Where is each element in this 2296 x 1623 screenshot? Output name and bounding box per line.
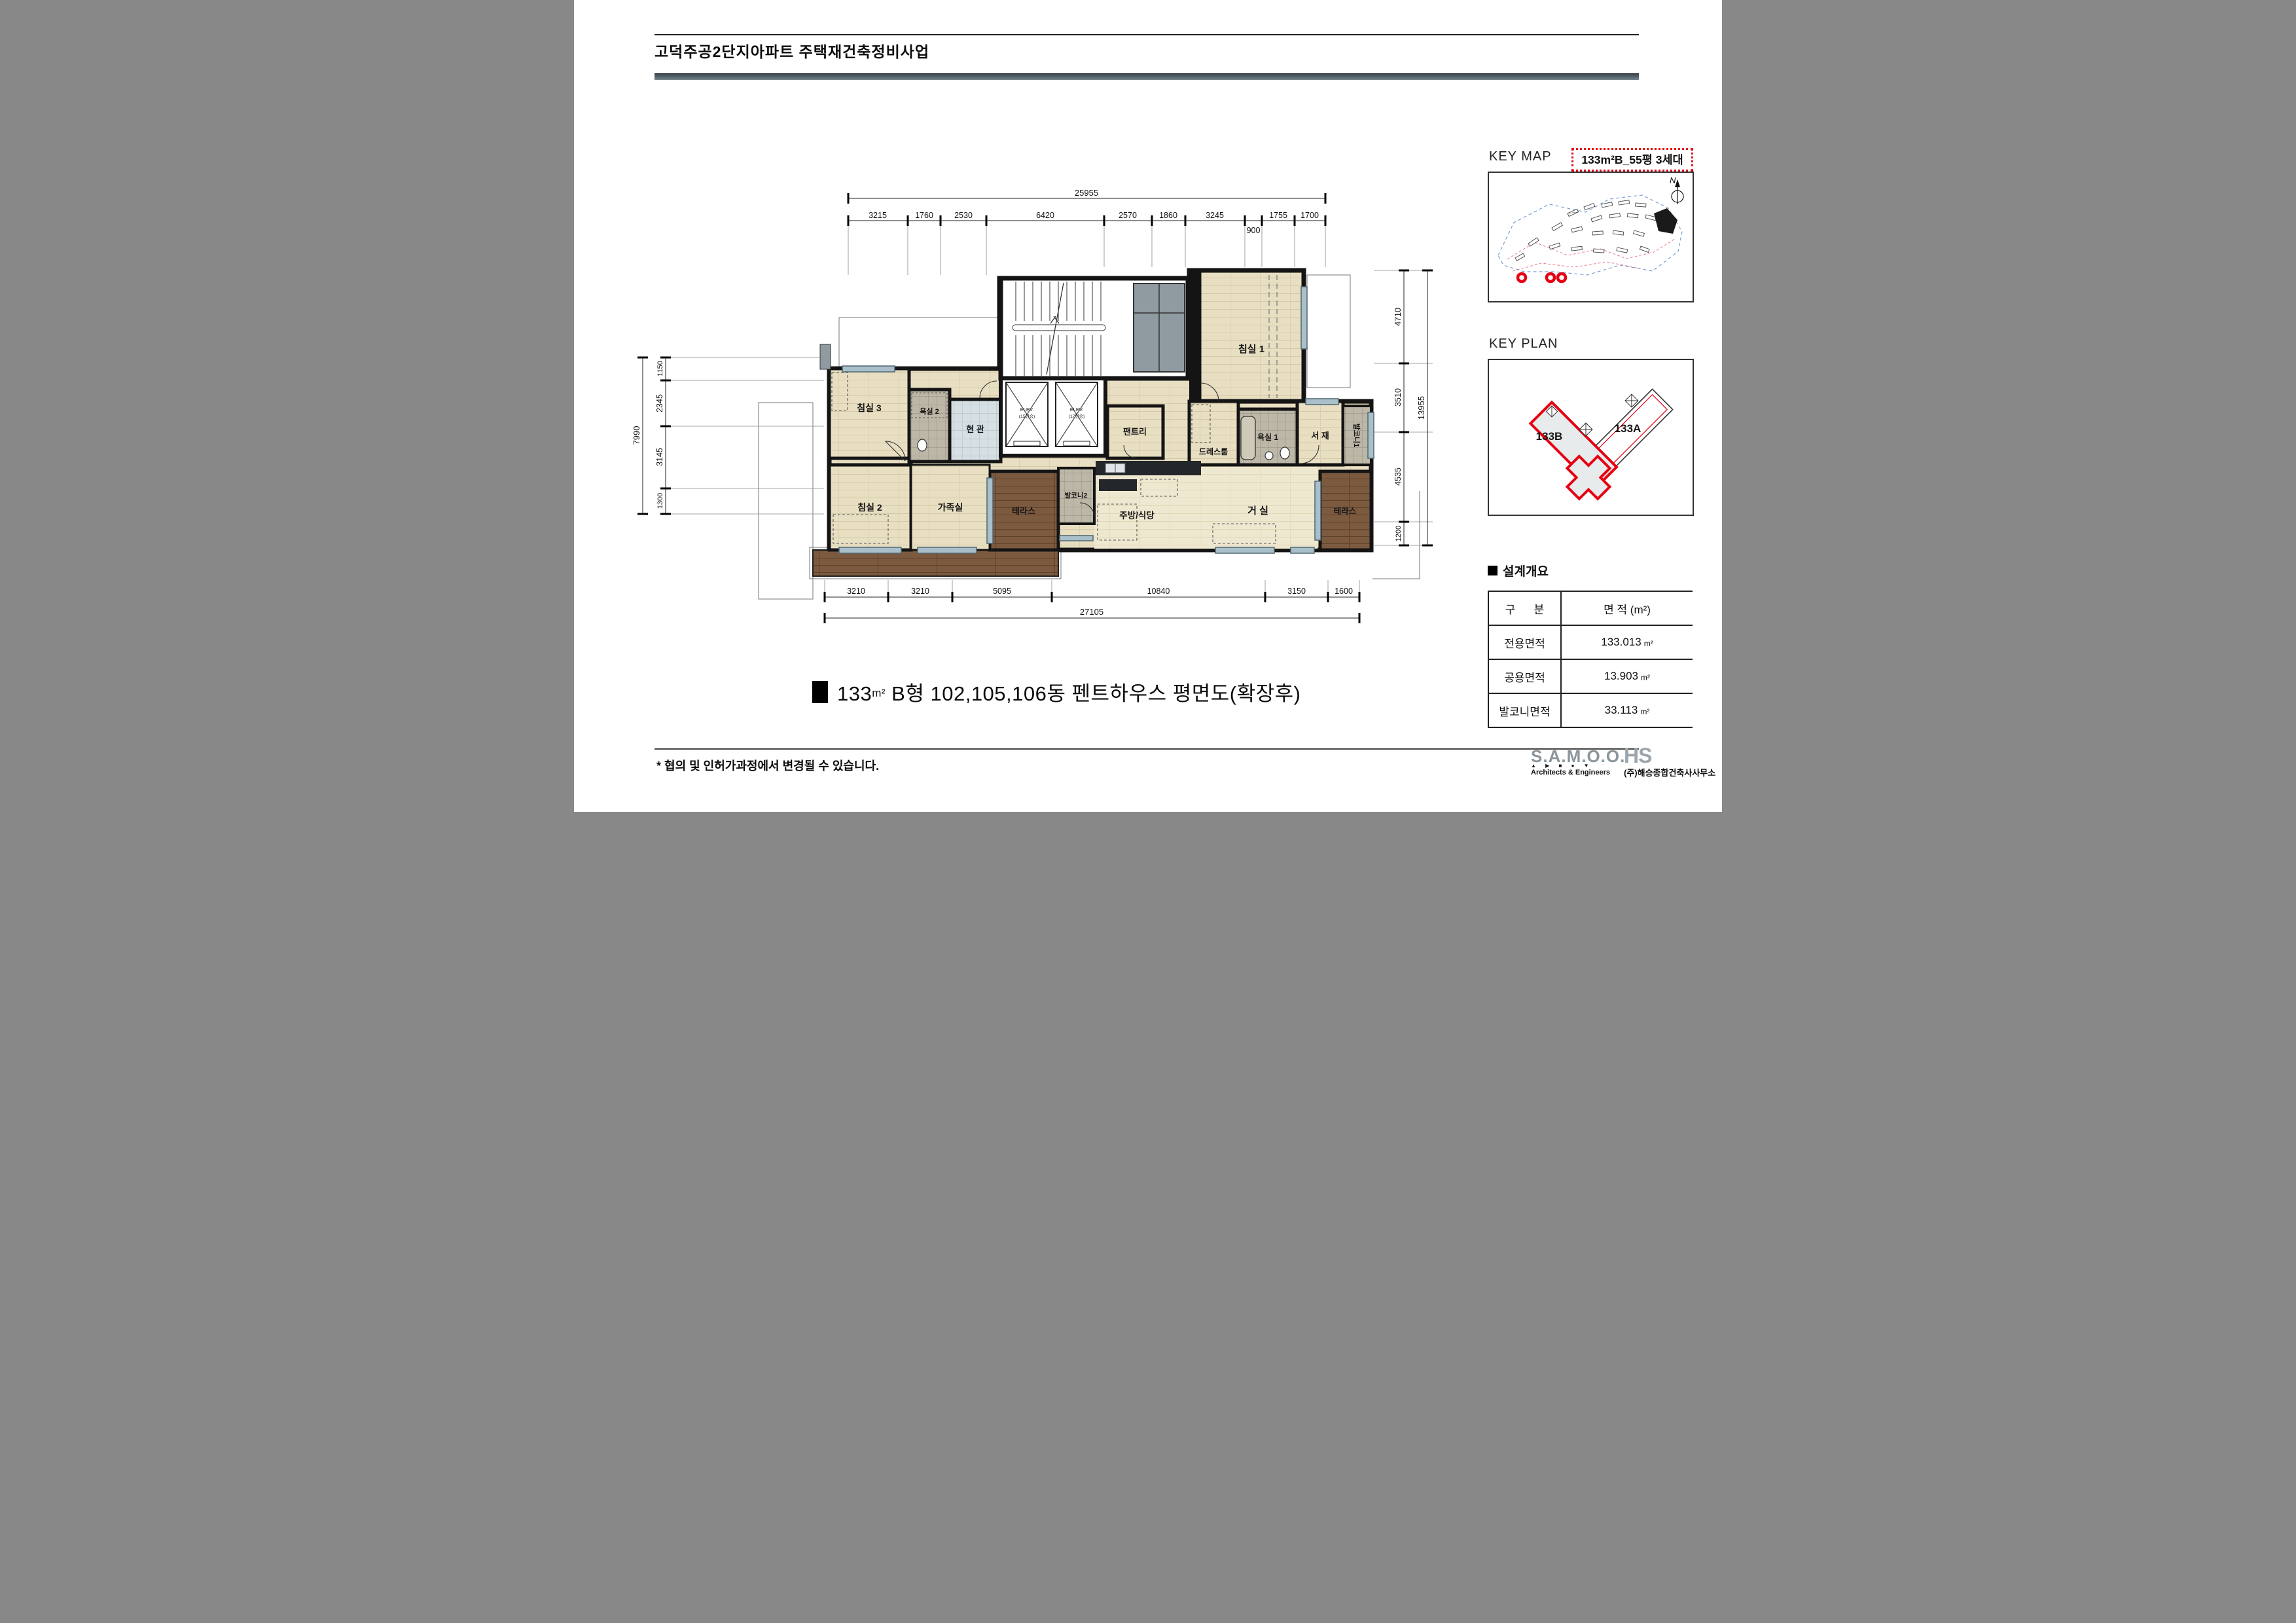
header-divider-bar xyxy=(655,73,1639,80)
samoo-subtitle: Architects & Engineers xyxy=(1531,769,1623,776)
room-label-family: 가족실 xyxy=(938,502,963,513)
dim: 3245 xyxy=(1206,211,1224,220)
room-label-balcony2: 발코니2 xyxy=(1065,491,1088,500)
samoo-wordmark: S.A.M.O.O. xyxy=(1531,749,1623,763)
dim-total-left: 7990 xyxy=(632,426,641,445)
elevator-capacity-15: (15인승) xyxy=(1019,413,1035,419)
keymap-buildings xyxy=(1515,200,1657,261)
room-label-balcony1: 발코니1 xyxy=(1352,424,1361,447)
keymap-panel: N xyxy=(1488,172,1694,302)
room-label-bedroom1: 침실 1 xyxy=(1238,344,1265,355)
kitchen-island xyxy=(1099,479,1137,491)
table-row: 발코니면적 33.113 m² xyxy=(1489,693,1693,728)
dim: 3145 xyxy=(655,448,664,466)
elevator-label: ELEV. xyxy=(1020,407,1034,412)
dim: 4710 xyxy=(1393,308,1403,326)
keymap-drawing: N xyxy=(1489,173,1690,299)
room-bedroom1 xyxy=(1199,270,1304,401)
row-label: 발코니면적 xyxy=(1489,694,1562,727)
north-label: N xyxy=(1670,175,1676,185)
room-label-terrace-left: 테라스 xyxy=(1012,506,1035,516)
dim: 2530 xyxy=(954,211,973,220)
dim: 2345 xyxy=(655,394,664,412)
dim: 6420 xyxy=(1036,211,1054,220)
room-label-pantry: 팬트리 xyxy=(1123,427,1147,437)
block-133b-label: 133B xyxy=(1536,430,1563,443)
hs-wordmark: HS xyxy=(1624,746,1722,765)
dim: 1760 xyxy=(915,211,933,220)
col-header-area: 면 적 (m²) xyxy=(1562,592,1693,625)
room-label-bath1: 욕실 1 xyxy=(1257,432,1278,442)
dim: 2570 xyxy=(1119,211,1137,220)
samoo-logo: S.A.M.O.O. ▲ ▶ ■ ● ▼ Architects & Engine… xyxy=(1531,749,1623,776)
firm-name: (주)해승종합건축사사무소 xyxy=(1624,766,1722,778)
dim: 4535 xyxy=(1393,467,1403,486)
table-row: 전용면적 133.013 m² xyxy=(1489,625,1693,659)
area-unit: m² xyxy=(1640,707,1649,716)
row-value: 133.013 m² xyxy=(1562,626,1693,659)
room-label-bedroom2: 침실 2 xyxy=(857,502,882,513)
row-value: 13.903 m² xyxy=(1562,660,1693,693)
keyplan-title: KEY PLAN xyxy=(1489,337,1558,352)
dim: 1755 xyxy=(1269,211,1287,220)
area-unit: m² xyxy=(1641,673,1650,682)
hs-logo: HS (주)해승종합건축사사무소 xyxy=(1624,746,1722,778)
dim: 3210 xyxy=(911,587,929,596)
table-row: 공용면적 13.903 m² xyxy=(1489,659,1693,693)
dim-total-bottom: 27105 xyxy=(1080,607,1103,617)
footer-rule xyxy=(655,748,1639,750)
row-label: 전용면적 xyxy=(1489,626,1562,659)
elevator-label: ELEV. xyxy=(1070,407,1084,412)
living-floor xyxy=(1094,464,1318,549)
footnote: * 협의 및 인허가과정에서 변경될 수 있습니다. xyxy=(656,757,879,774)
room-label-study: 서 재 xyxy=(1311,431,1329,441)
dim: 1700 xyxy=(1300,211,1319,220)
room-label-terrace-right: 테라스 xyxy=(1334,506,1357,516)
dim: 10840 xyxy=(1147,587,1170,596)
elevator-capacity-17: (17인승) xyxy=(1069,413,1085,419)
room-label-bath2: 욕실 2 xyxy=(920,407,939,416)
dim: 1300 xyxy=(656,493,664,509)
summary-title-text: 설계개요 xyxy=(1503,562,1549,579)
dim: 3210 xyxy=(847,587,865,596)
page-title: 고덕주공2단지아파트 주택재건축정비사업 xyxy=(655,39,929,62)
north-arrow-icon: N xyxy=(1670,175,1683,204)
drawing-caption: 133m² B형 102,105,106동 펜트하우스 평면도(확장후) xyxy=(812,677,1301,706)
room-bath2 xyxy=(909,390,950,462)
keyplan-panel: 133B 133A xyxy=(1488,359,1694,516)
caption-area: 133 xyxy=(837,682,872,705)
summary-title: 설계개요 xyxy=(1488,562,1549,579)
dim: 3215 xyxy=(869,211,887,220)
drawing-sheet: 고덕주공2단지아파트 주택재건축정비사업 KEY MAP 133m²B_55평 … xyxy=(574,0,1722,812)
bathtub-icon xyxy=(1241,416,1255,460)
dim-chain-top: 25955 3215 1760 2530 6420 2570 1860 3245… xyxy=(848,188,1327,235)
row-value: 33.113 m² xyxy=(1562,694,1693,727)
basin-icon xyxy=(1265,452,1273,460)
room-label-living: 거 실 xyxy=(1247,505,1268,517)
area-unit: m² xyxy=(1644,639,1653,648)
dim: 3150 xyxy=(1287,587,1306,596)
dim: 1860 xyxy=(1159,211,1177,220)
dim: 1600 xyxy=(1335,587,1353,596)
caption-text: 133m² B형 102,105,106동 펜트하우스 평면도(확장후) xyxy=(837,677,1301,706)
square-bullet-icon xyxy=(812,681,828,703)
dim-chain-right: 4710 3510 4535 1200 13955 xyxy=(1393,270,1433,547)
room-label-kitchen: 주방/식당 xyxy=(1119,510,1155,520)
wall-chunk xyxy=(1189,270,1199,401)
dim: 3510 xyxy=(1393,388,1403,407)
unit-location-markers xyxy=(1518,274,1566,282)
dim-chain-left: 1150 2345 3145 1300 7990 xyxy=(632,357,671,515)
dim-total-right: 13955 xyxy=(1416,396,1426,420)
square-bullet-icon xyxy=(1488,566,1498,575)
floor-plan: ELEV. (15인승) ELEV. (17인승) xyxy=(613,183,1464,635)
toilet-icon xyxy=(1280,447,1289,459)
dim-chain-bottom: 3210 3210 5095 10840 3150 1600 27105 xyxy=(824,587,1361,623)
caption-rest: B형 102,105,106동 펜트하우스 평면도(확장후) xyxy=(886,682,1300,705)
room-label-dress: 드레스룸 xyxy=(1199,447,1228,456)
row-label: 공용면적 xyxy=(1489,660,1562,693)
dim: 5095 xyxy=(993,587,1011,596)
room-label-bedroom3: 침실 3 xyxy=(857,403,882,413)
summary-table: 구 분 면 적 (m²) 전용면적 133.013 m² 공용면적 13.903… xyxy=(1488,591,1693,728)
keymap-dark-block xyxy=(1654,208,1677,234)
unit-type-tag: 133m²B_55평 3세대 xyxy=(1571,148,1693,172)
col-header-category: 구 분 xyxy=(1489,592,1562,625)
dim: 1150 xyxy=(656,361,664,376)
caption-unit: m² xyxy=(872,687,886,699)
area-value: 13.903 xyxy=(1604,670,1638,683)
block-133a-label: 133A xyxy=(1615,422,1641,435)
toilet-icon xyxy=(918,439,927,451)
top-rule xyxy=(655,34,1639,35)
keyplan-drawing: 133B 133A xyxy=(1489,360,1690,512)
area-value: 133.013 xyxy=(1601,636,1641,649)
keymap-title: KEY MAP xyxy=(1489,149,1552,164)
dim: 1200 xyxy=(1395,526,1403,541)
table-header-row: 구 분 면 적 (m²) xyxy=(1489,591,1693,625)
area-value: 33.113 xyxy=(1605,704,1638,717)
dim-sub: 900 xyxy=(1247,226,1261,235)
dim-total-top: 25955 xyxy=(1075,188,1098,198)
room-label-entry: 현 관 xyxy=(966,424,984,434)
